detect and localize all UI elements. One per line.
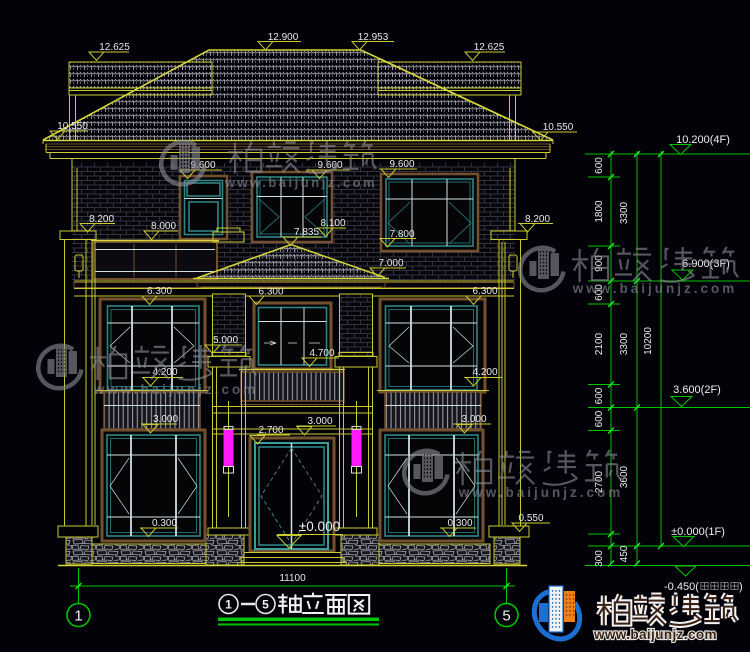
svg-text:5: 5 xyxy=(502,608,510,625)
svg-text:www.baijunjz.com: www.baijunjz.com xyxy=(458,485,624,500)
svg-text:11100: 11100 xyxy=(279,573,306,584)
svg-text:12.625: 12.625 xyxy=(99,42,130,53)
svg-text:0.300: 0.300 xyxy=(447,518,472,529)
svg-text:1: 1 xyxy=(74,608,82,625)
svg-text:10200: 10200 xyxy=(643,327,654,355)
svg-text:5.000: 5.000 xyxy=(213,335,238,346)
svg-text:3300: 3300 xyxy=(619,332,630,355)
svg-text:8.000: 8.000 xyxy=(151,221,176,232)
svg-text:600: 600 xyxy=(594,157,605,174)
svg-text:1800: 1800 xyxy=(594,200,605,223)
svg-text:600: 600 xyxy=(594,410,605,427)
svg-text:6.300: 6.300 xyxy=(472,286,497,297)
svg-text:www.baijunjz.com: www.baijunjz.com xyxy=(224,175,377,190)
svg-text:4.200: 4.200 xyxy=(472,367,497,378)
svg-text:3.600(2F): 3.600(2F) xyxy=(673,384,721,396)
svg-text:9.600: 9.600 xyxy=(389,159,414,170)
svg-text:2.700: 2.700 xyxy=(258,425,283,436)
svg-text:7.835: 7.835 xyxy=(294,227,319,238)
svg-text:www.baijunjz.com: www.baijunjz.com xyxy=(593,627,717,642)
svg-text:2100: 2100 xyxy=(594,332,605,355)
svg-text:www.baijunjz.com: www.baijunjz.com xyxy=(572,281,738,296)
svg-text:450: 450 xyxy=(619,545,630,562)
svg-text:-0.450(: -0.450( xyxy=(664,581,699,593)
svg-text:0.550: 0.550 xyxy=(518,513,543,524)
svg-text:3.000: 3.000 xyxy=(461,414,486,425)
svg-text:3.000: 3.000 xyxy=(153,414,178,425)
svg-text:0.300: 0.300 xyxy=(152,518,177,529)
svg-text:6.300: 6.300 xyxy=(147,286,172,297)
svg-text:5: 5 xyxy=(262,598,269,612)
svg-text:300: 300 xyxy=(594,550,605,567)
svg-text:12.625: 12.625 xyxy=(474,42,505,53)
svg-text:10.550: 10.550 xyxy=(57,121,88,132)
svg-text:): ) xyxy=(739,581,743,593)
svg-text:3300: 3300 xyxy=(619,201,630,224)
svg-text:7.000: 7.000 xyxy=(378,258,403,269)
svg-text:8.100: 8.100 xyxy=(320,218,345,229)
svg-text:±0.000: ±0.000 xyxy=(299,519,340,534)
svg-text:4.700: 4.700 xyxy=(309,348,334,359)
svg-text:3.000: 3.000 xyxy=(307,416,332,427)
svg-text:1: 1 xyxy=(225,598,232,612)
svg-text:600: 600 xyxy=(594,387,605,404)
svg-text:10.550: 10.550 xyxy=(543,122,574,133)
svg-text:www.baijunjz.com: www.baijunjz.com xyxy=(93,382,259,397)
